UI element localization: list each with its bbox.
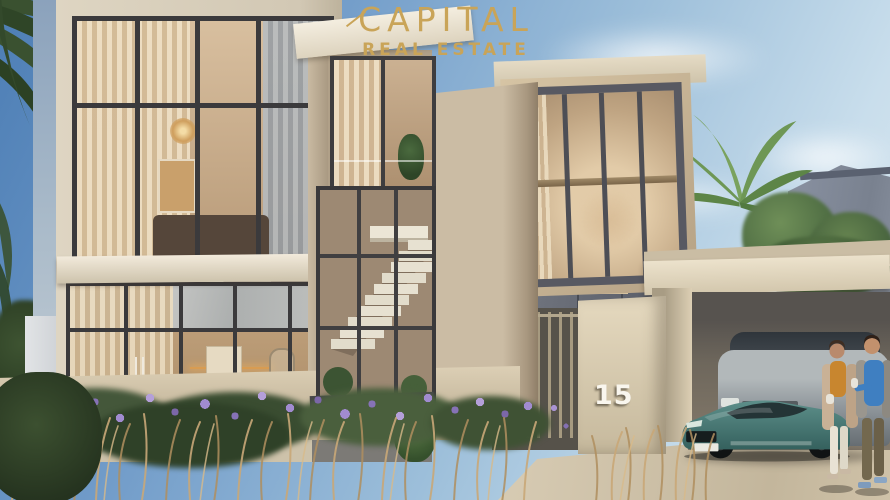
window-mullion — [381, 60, 385, 188]
window-mullion — [256, 21, 261, 263]
wall-art — [158, 159, 196, 213]
window-mullion — [394, 190, 398, 402]
brand-watermark: CAPITAL REAL ESTATE — [346, 2, 546, 60]
window-mullion — [320, 326, 432, 330]
balcony-plant — [398, 134, 424, 180]
chandelier — [170, 118, 196, 144]
staircase — [320, 190, 432, 402]
upper-floor-window — [72, 16, 334, 268]
window-mullion — [320, 254, 432, 258]
window-mullion — [195, 21, 200, 263]
dry-grasses — [0, 392, 720, 500]
brand-tagline: REAL ESTATE — [346, 40, 546, 60]
floor-slab-band — [57, 254, 343, 284]
window-mullion — [636, 91, 647, 275]
pampas-decor — [580, 187, 638, 253]
window-mullion — [70, 328, 342, 332]
staircase-glass-wall — [316, 186, 436, 406]
villa-render-image: 15 — [0, 0, 890, 500]
corner-bush — [0, 372, 102, 500]
window-mullion — [135, 21, 140, 263]
couple-walking — [806, 334, 890, 496]
tower-balcony-window — [330, 56, 436, 192]
window-mullion — [357, 190, 361, 402]
curtain — [334, 60, 381, 188]
brand-name: CAPITAL — [358, 2, 534, 38]
window-mullion — [561, 94, 572, 278]
window-mullion — [77, 103, 329, 108]
